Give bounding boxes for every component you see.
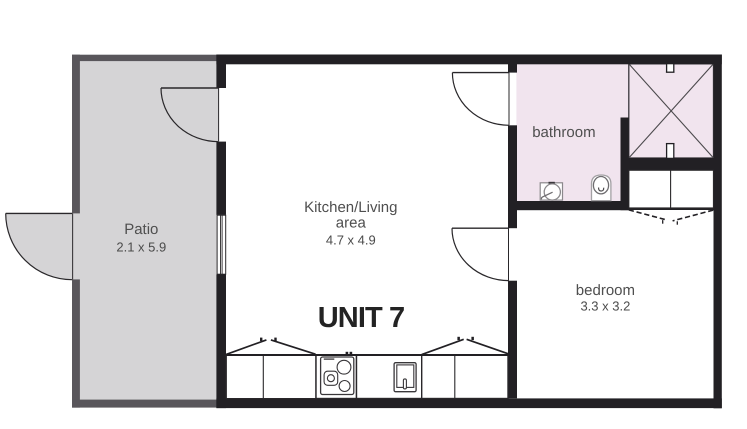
svg-text:bathroom: bathroom [532,124,595,141]
svg-text:2.1 x 5.9: 2.1 x 5.9 [116,240,166,255]
svg-text:area: area [336,214,367,231]
svg-text:4.7 x 4.9: 4.7 x 4.9 [326,232,376,247]
svg-text:bedroom: bedroom [576,282,635,299]
svg-text:Patio: Patio [124,221,158,238]
svg-text:UNIT 7: UNIT 7 [318,302,404,334]
svg-text:3.3 x 3.2: 3.3 x 3.2 [580,298,630,313]
